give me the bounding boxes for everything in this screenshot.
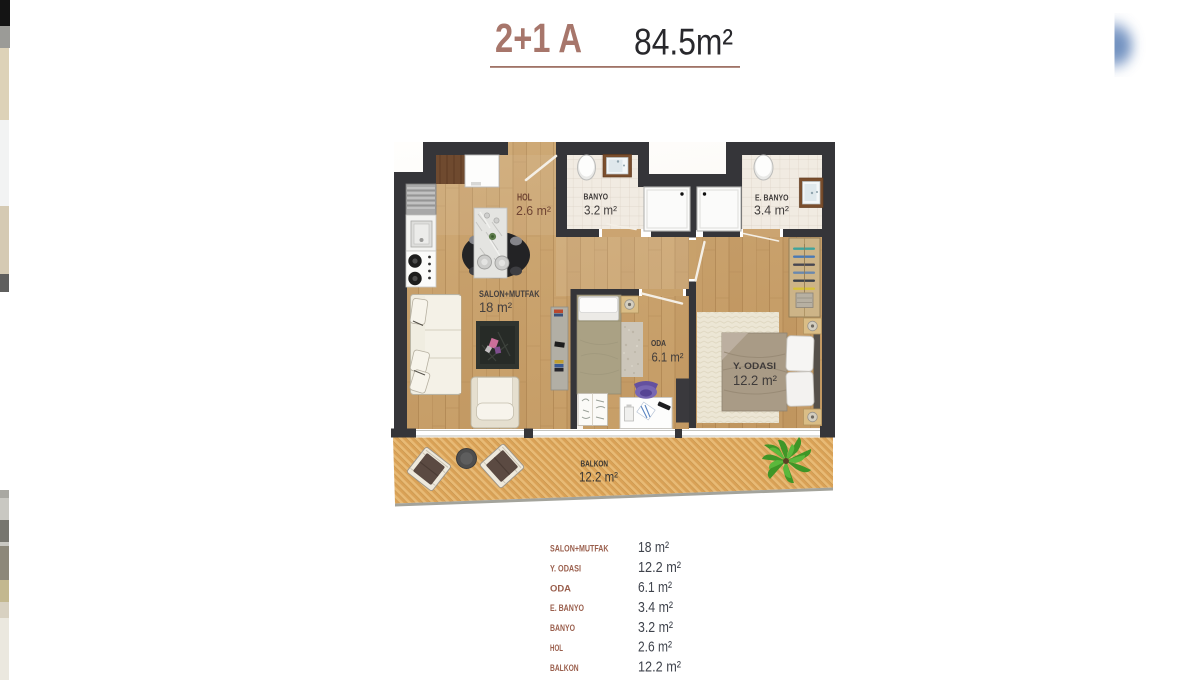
- svg-text:HOL: HOL: [550, 643, 563, 653]
- svg-text:12.2 m²: 12.2 m²: [638, 559, 681, 576]
- svg-text:E. BANYO: E. BANYO: [755, 194, 789, 203]
- svg-text:3.2 m²: 3.2 m²: [638, 619, 673, 636]
- svg-text:3.4 m²: 3.4 m²: [638, 599, 673, 616]
- svg-text:12.2 m²: 12.2 m²: [733, 372, 777, 388]
- svg-text:2+1 A: 2+1 A: [495, 15, 582, 61]
- svg-text:ODA: ODA: [651, 339, 666, 348]
- svg-text:2.6 m²: 2.6 m²: [516, 203, 552, 218]
- svg-text:E. BANYO: E. BANYO: [550, 603, 584, 613]
- svg-text:84.5m²: 84.5m²: [634, 22, 733, 63]
- svg-text:18 m²: 18 m²: [479, 299, 512, 315]
- svg-text:HOL: HOL: [517, 193, 532, 204]
- svg-text:BANYO: BANYO: [550, 623, 575, 633]
- svg-text:ODA: ODA: [550, 583, 572, 593]
- svg-text:2.6 m²: 2.6 m²: [638, 639, 672, 656]
- svg-text:BALKON: BALKON: [550, 663, 579, 673]
- svg-text:6.1 m²: 6.1 m²: [652, 351, 684, 365]
- svg-text:12.2 m²: 12.2 m²: [579, 470, 618, 485]
- svg-text:BANYO: BANYO: [584, 193, 609, 202]
- svg-text:3.2 m²: 3.2 m²: [584, 204, 617, 218]
- svg-text:BALKON: BALKON: [581, 459, 609, 469]
- svg-text:SALON+MUTFAK: SALON+MUTFAK: [550, 544, 609, 554]
- svg-text:12.2 m²: 12.2 m²: [638, 658, 681, 675]
- svg-text:18 m²: 18 m²: [638, 539, 669, 556]
- svg-text:6.1 m²: 6.1 m²: [638, 579, 672, 596]
- svg-text:Y. ODASI: Y. ODASI: [550, 564, 581, 574]
- svg-text:Y. ODASI: Y. ODASI: [733, 361, 776, 372]
- svg-text:3.4 m²: 3.4 m²: [754, 204, 789, 218]
